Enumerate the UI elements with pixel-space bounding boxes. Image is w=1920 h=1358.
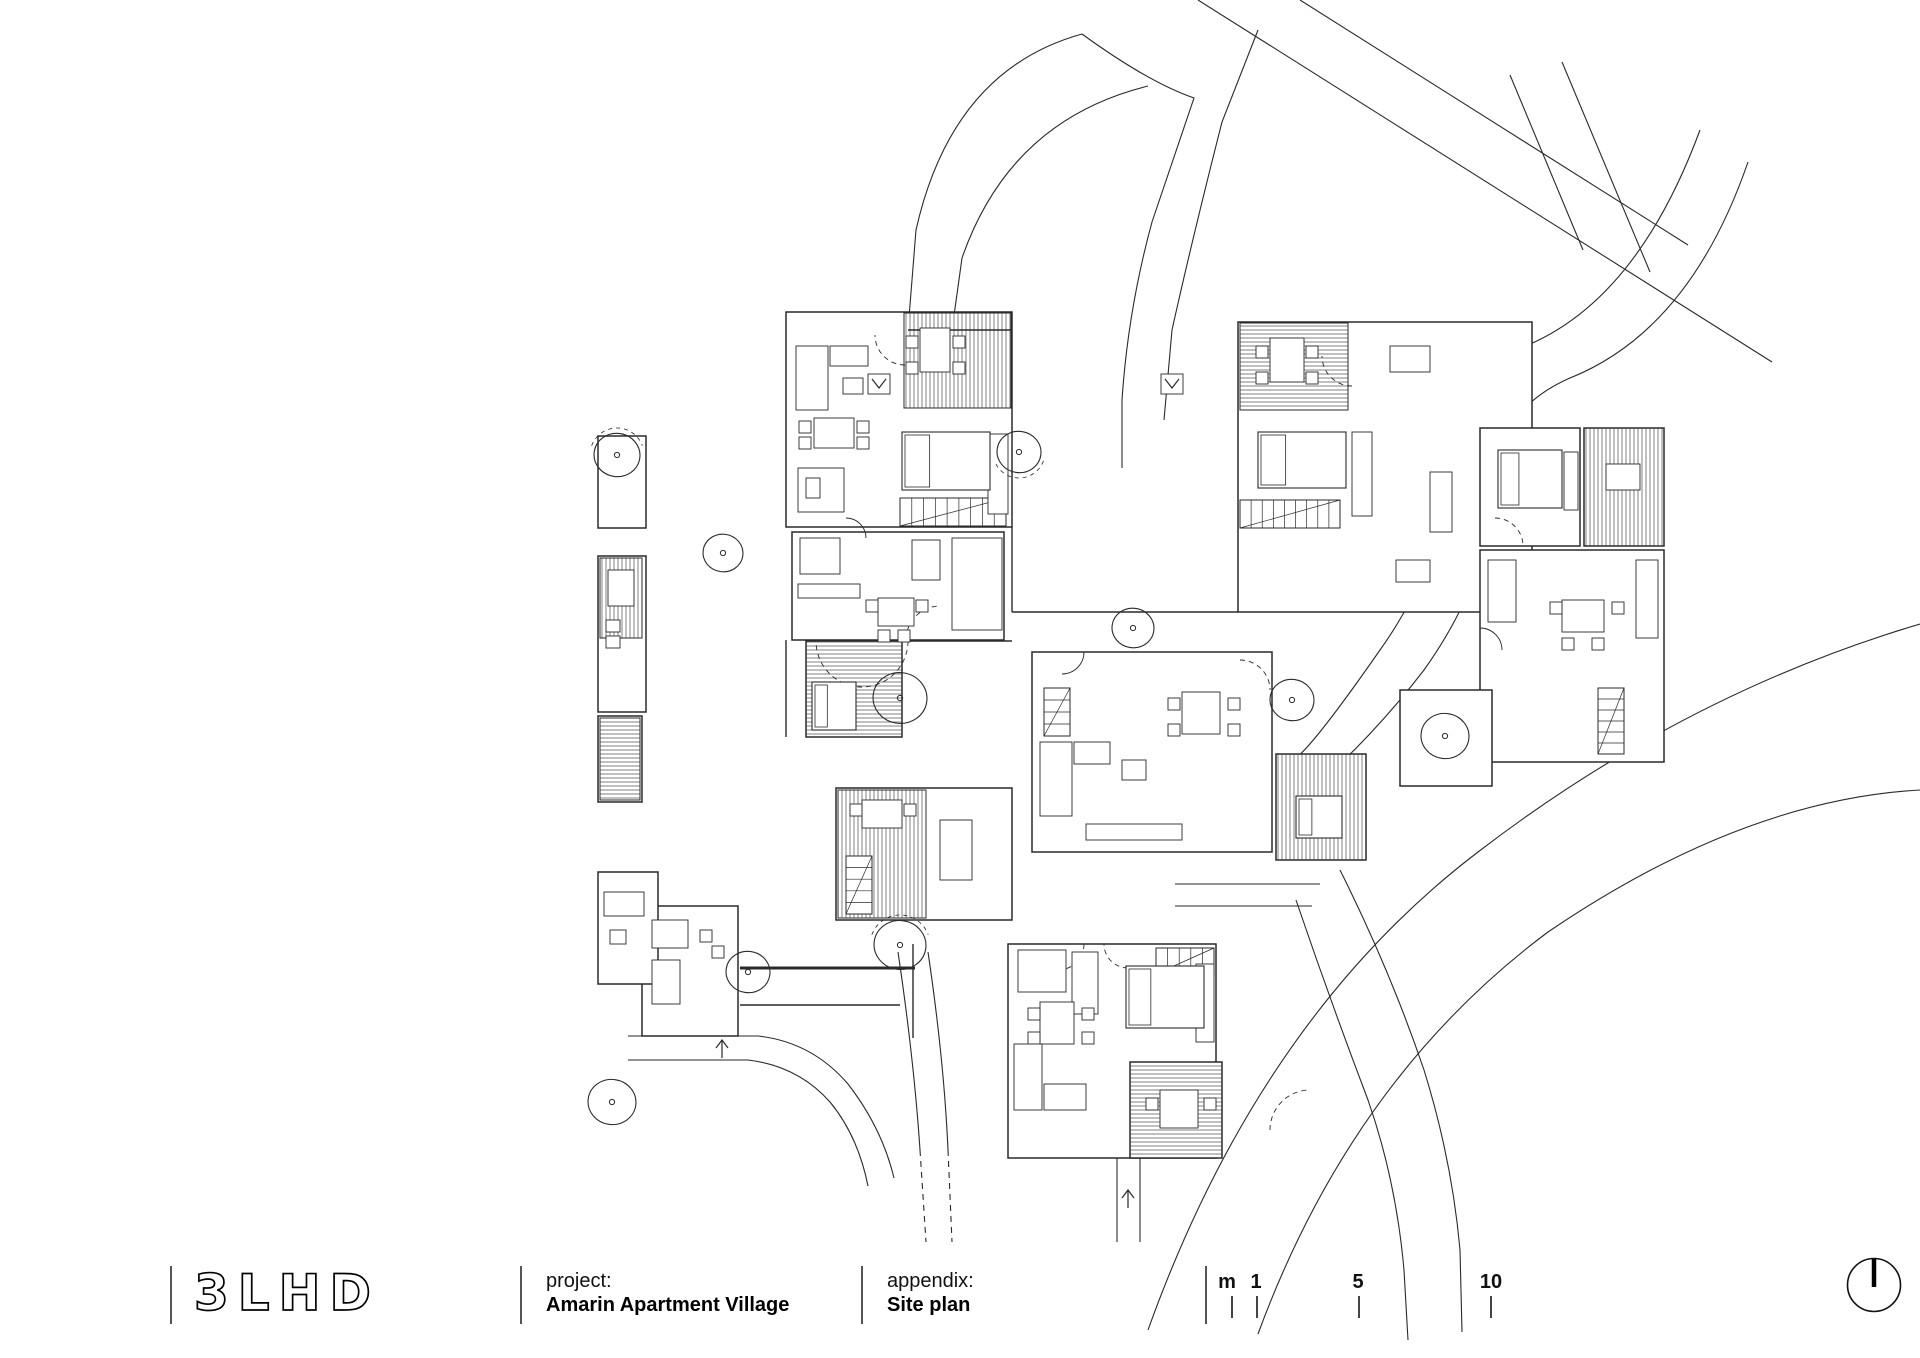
road-path [1340, 870, 1462, 1332]
scale-tick-label-10: 10 [1480, 1271, 1502, 1294]
furniture-item [1082, 1032, 1094, 1044]
furniture-item [878, 598, 914, 626]
road-path [928, 952, 948, 1150]
tree-canopy [701, 532, 746, 575]
road-path [1562, 62, 1650, 272]
furniture-item [1074, 742, 1110, 764]
furniture-item [1182, 692, 1220, 734]
arrow [1122, 1190, 1134, 1208]
furniture-item [1014, 1044, 1042, 1110]
buildings-layer [598, 312, 1664, 1158]
furniture-item [652, 920, 688, 948]
stair-flight [1240, 500, 1340, 528]
scale-tick-label-1: 1 [1250, 1271, 1261, 1294]
furniture-item [1352, 432, 1372, 516]
road-path [628, 1036, 894, 1178]
furniture-item [1562, 600, 1604, 632]
furniture-item [920, 328, 950, 372]
bed [1258, 432, 1346, 488]
road-path [1198, 0, 1772, 362]
tree-canopy [1267, 676, 1316, 723]
bed [1498, 450, 1562, 508]
furniture-item [916, 600, 928, 612]
furniture-item [1146, 1098, 1158, 1110]
logo-text: 3LHD [194, 1264, 380, 1322]
tree-trunk [609, 1099, 614, 1104]
furniture-item [1161, 374, 1183, 394]
furniture-item [1390, 346, 1430, 372]
furniture-item [1306, 346, 1318, 358]
furniture-item [1612, 602, 1624, 614]
road-path [948, 1150, 952, 1242]
scale-tick-mark [1490, 1296, 1492, 1318]
project-label: project: [546, 1270, 612, 1293]
furniture-item [952, 538, 1002, 630]
furniture-item [1040, 742, 1072, 816]
furniture-item [606, 636, 620, 648]
furniture-item [857, 437, 869, 449]
furniture-item [1636, 560, 1658, 638]
furniture-item [850, 804, 862, 816]
stair-flight [1044, 688, 1070, 736]
furniture-item [843, 378, 863, 394]
furniture-item [799, 437, 811, 449]
bed-outline [812, 682, 856, 730]
tree-trunk [720, 550, 725, 555]
tree-trunk [1130, 625, 1135, 630]
scalebar-divider [1205, 1266, 1207, 1324]
furniture-item [799, 421, 811, 433]
furniture-item [1082, 1008, 1094, 1020]
furniture-item [1228, 724, 1240, 736]
tree [701, 532, 746, 575]
furniture-item [1028, 1008, 1040, 1020]
bed-outline [1126, 966, 1204, 1028]
project-value: Amarin Apartment Village [546, 1294, 789, 1317]
tree-trunk [897, 942, 902, 947]
scale-tick-mark [1358, 1296, 1360, 1318]
furniture-item [608, 570, 634, 606]
road-path [1300, 0, 1688, 245]
furniture-item [1086, 824, 1182, 840]
furniture-item [1564, 452, 1578, 510]
tree [585, 1076, 639, 1127]
furniture-item [1306, 372, 1318, 384]
tree-trunk [1016, 449, 1021, 454]
bed-outline [1258, 432, 1346, 488]
stair-flight [846, 856, 872, 914]
furniture-item [1168, 698, 1180, 710]
furniture-item [1044, 1084, 1086, 1110]
bed-outline [1296, 796, 1342, 838]
stair-flight [1598, 688, 1624, 754]
scale-tick-mark [1231, 1296, 1233, 1318]
bed [812, 682, 856, 730]
bed [1296, 796, 1342, 838]
tree-trunk [1289, 697, 1294, 702]
furniture-item [1256, 372, 1268, 384]
furniture-item [1028, 1032, 1040, 1044]
north-arrow-icon [1844, 1255, 1904, 1315]
furniture-item [1160, 1090, 1198, 1128]
furniture-item [868, 374, 890, 394]
company-logo: 3LHD [190, 1264, 420, 1326]
furniture-item [610, 930, 626, 944]
scale-tick-label-5: 5 [1352, 1271, 1363, 1294]
furniture-item [1228, 698, 1240, 710]
scale-unit-label: m [1218, 1271, 1236, 1294]
furniture-item [1122, 760, 1146, 780]
furniture-item [1270, 338, 1304, 382]
furniture-item [953, 336, 965, 348]
appendix-value: Site plan [887, 1294, 970, 1317]
furniture-item [866, 600, 878, 612]
furniture-item [1430, 472, 1452, 532]
furniture-item [1168, 724, 1180, 736]
road-path [952, 86, 1148, 330]
road-path [1082, 34, 1194, 468]
titleblock-divider [861, 1266, 863, 1324]
furniture-item [906, 362, 918, 374]
road-path [898, 952, 920, 1150]
bed [902, 432, 990, 490]
furniture-item [1606, 464, 1640, 490]
appendix-label: appendix: [887, 1270, 974, 1293]
tree-trunk [745, 969, 750, 974]
furniture-item [878, 630, 890, 642]
furniture-item [904, 804, 916, 816]
furniture-item [1488, 560, 1516, 622]
furniture-item [857, 421, 869, 433]
furniture-item [1396, 560, 1430, 582]
bed-outline [1498, 450, 1562, 508]
door-swing-arc [1270, 1090, 1310, 1130]
tree [1267, 676, 1316, 723]
site-plan-drawing [0, 0, 1920, 1358]
furniture-item [700, 930, 712, 942]
furniture-item [606, 620, 620, 632]
furniture-item [652, 960, 680, 1004]
furniture-item [800, 538, 840, 574]
furniture-item [906, 336, 918, 348]
furniture-item [712, 946, 724, 958]
furniture-item [1550, 602, 1562, 614]
furniture-item [862, 800, 902, 828]
furniture-item [796, 346, 828, 410]
terrace-hatch [600, 718, 640, 800]
road-path [1258, 790, 1920, 1334]
drawing-sheet: 3LHD project: Amarin Apartment Village a… [0, 0, 1920, 1358]
furniture-item [1072, 952, 1098, 1014]
furniture-item [806, 478, 820, 498]
titleblock-divider [170, 1266, 172, 1324]
arrow [716, 1040, 728, 1058]
furniture-item [830, 346, 868, 366]
road-path [908, 34, 1082, 330]
furniture-item [953, 362, 965, 374]
up-arrow-icon [716, 1040, 728, 1058]
furniture-item [1592, 638, 1604, 650]
tree-canopy [585, 1076, 639, 1127]
furniture-item [1256, 346, 1268, 358]
furniture-item [912, 540, 940, 580]
furniture-item [898, 630, 910, 642]
bed [1126, 966, 1204, 1028]
furniture-item [1018, 950, 1066, 992]
road-path [920, 1150, 926, 1242]
furniture-item [798, 584, 860, 598]
furniture-item [798, 468, 844, 512]
titleblock-divider [520, 1266, 522, 1324]
furniture-item [940, 820, 972, 880]
scale-tick-mark [1256, 1296, 1258, 1318]
road-path [628, 1060, 868, 1186]
furniture-item [814, 418, 854, 448]
furniture-item [1204, 1098, 1216, 1110]
furniture-item [1562, 638, 1574, 650]
furniture-item [1040, 1002, 1074, 1044]
road-path [1510, 75, 1583, 250]
furniture-item [604, 892, 644, 916]
bed-outline [902, 432, 990, 490]
building-unit-outline [598, 872, 658, 984]
up-arrow-icon [1122, 1190, 1134, 1208]
